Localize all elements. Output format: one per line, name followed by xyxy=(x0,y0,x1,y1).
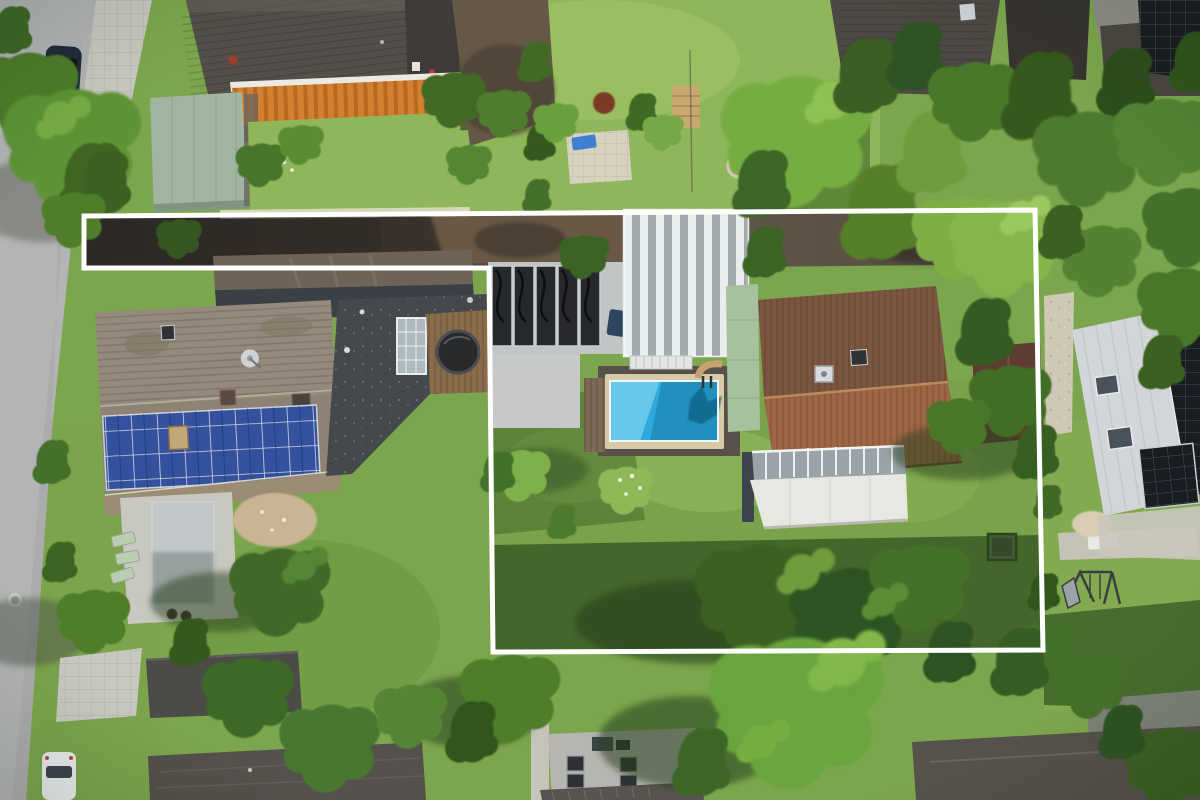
aerial-photo xyxy=(0,0,1200,800)
aerial-scene xyxy=(0,0,1200,800)
vignette xyxy=(0,0,1200,800)
